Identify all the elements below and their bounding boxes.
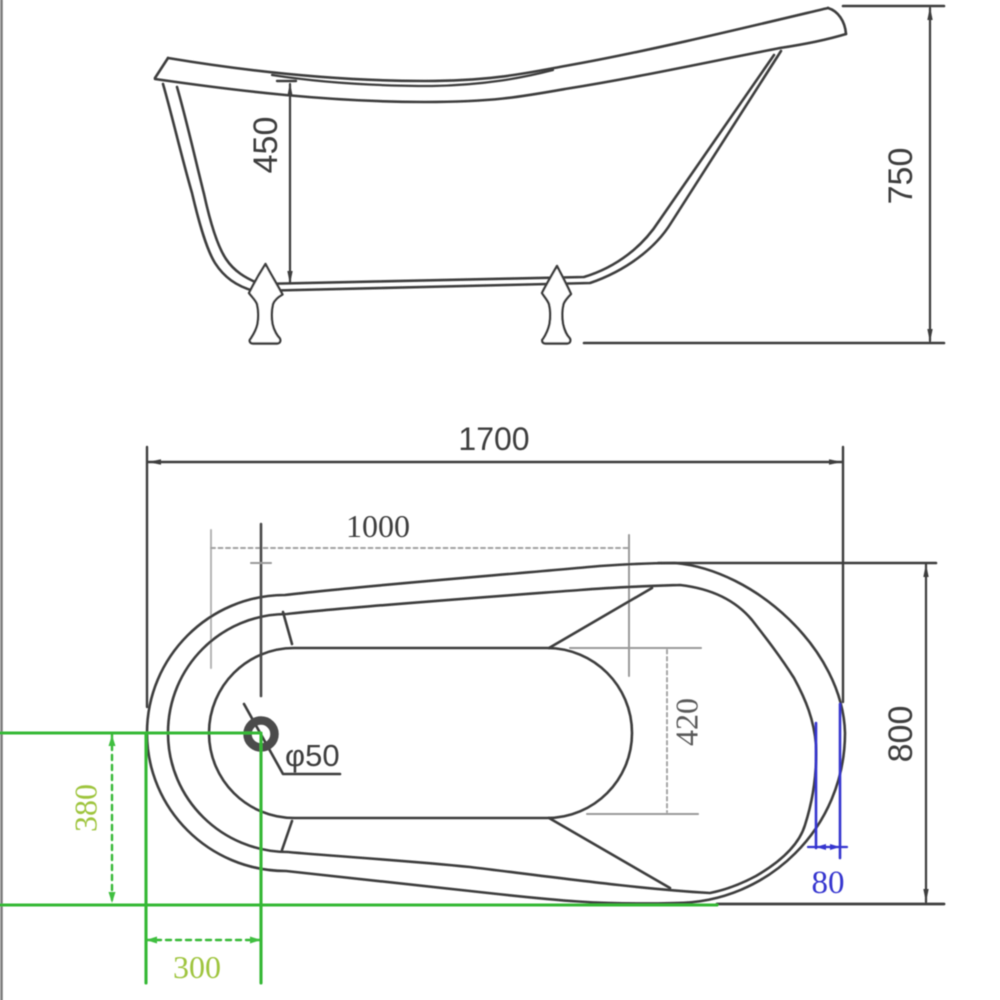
svg-text:380: 380 <box>67 784 103 832</box>
svg-text:80: 80 <box>812 865 845 901</box>
svg-text:1700: 1700 <box>458 421 529 457</box>
svg-text:800: 800 <box>882 706 920 763</box>
svg-text:420: 420 <box>668 698 704 746</box>
svg-text:450: 450 <box>247 117 285 174</box>
svg-text:300: 300 <box>173 949 221 985</box>
svg-text:750: 750 <box>882 148 920 205</box>
svg-text:φ50: φ50 <box>285 738 340 773</box>
svg-text:1000: 1000 <box>346 508 410 544</box>
